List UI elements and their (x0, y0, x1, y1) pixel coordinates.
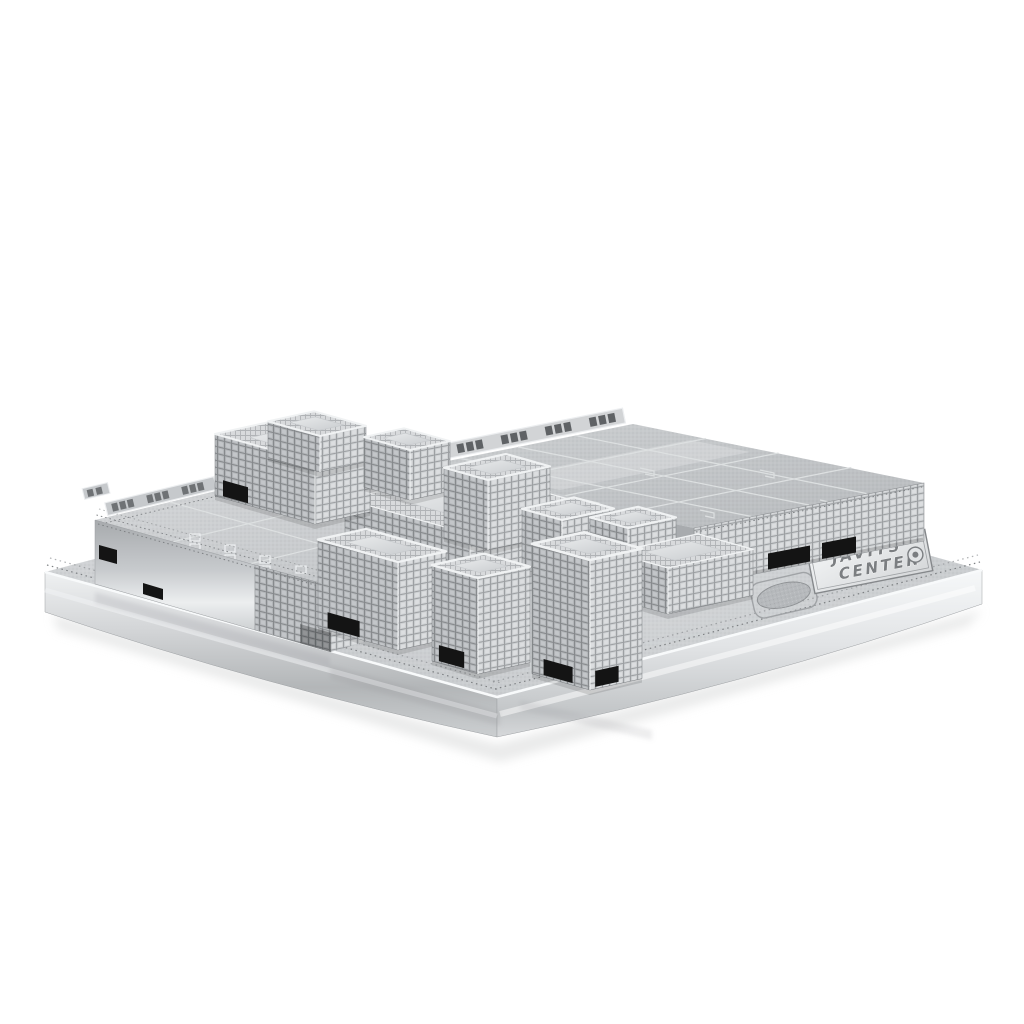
tower-back-mid (364, 428, 450, 505)
tower-front-mid (432, 554, 530, 679)
product-photo-javits-model: JAVITS CENTER (0, 0, 1024, 1024)
model-illustration: JAVITS CENTER (0, 0, 1024, 1024)
tower-front-main (532, 532, 642, 695)
tower-front-left (318, 529, 446, 655)
